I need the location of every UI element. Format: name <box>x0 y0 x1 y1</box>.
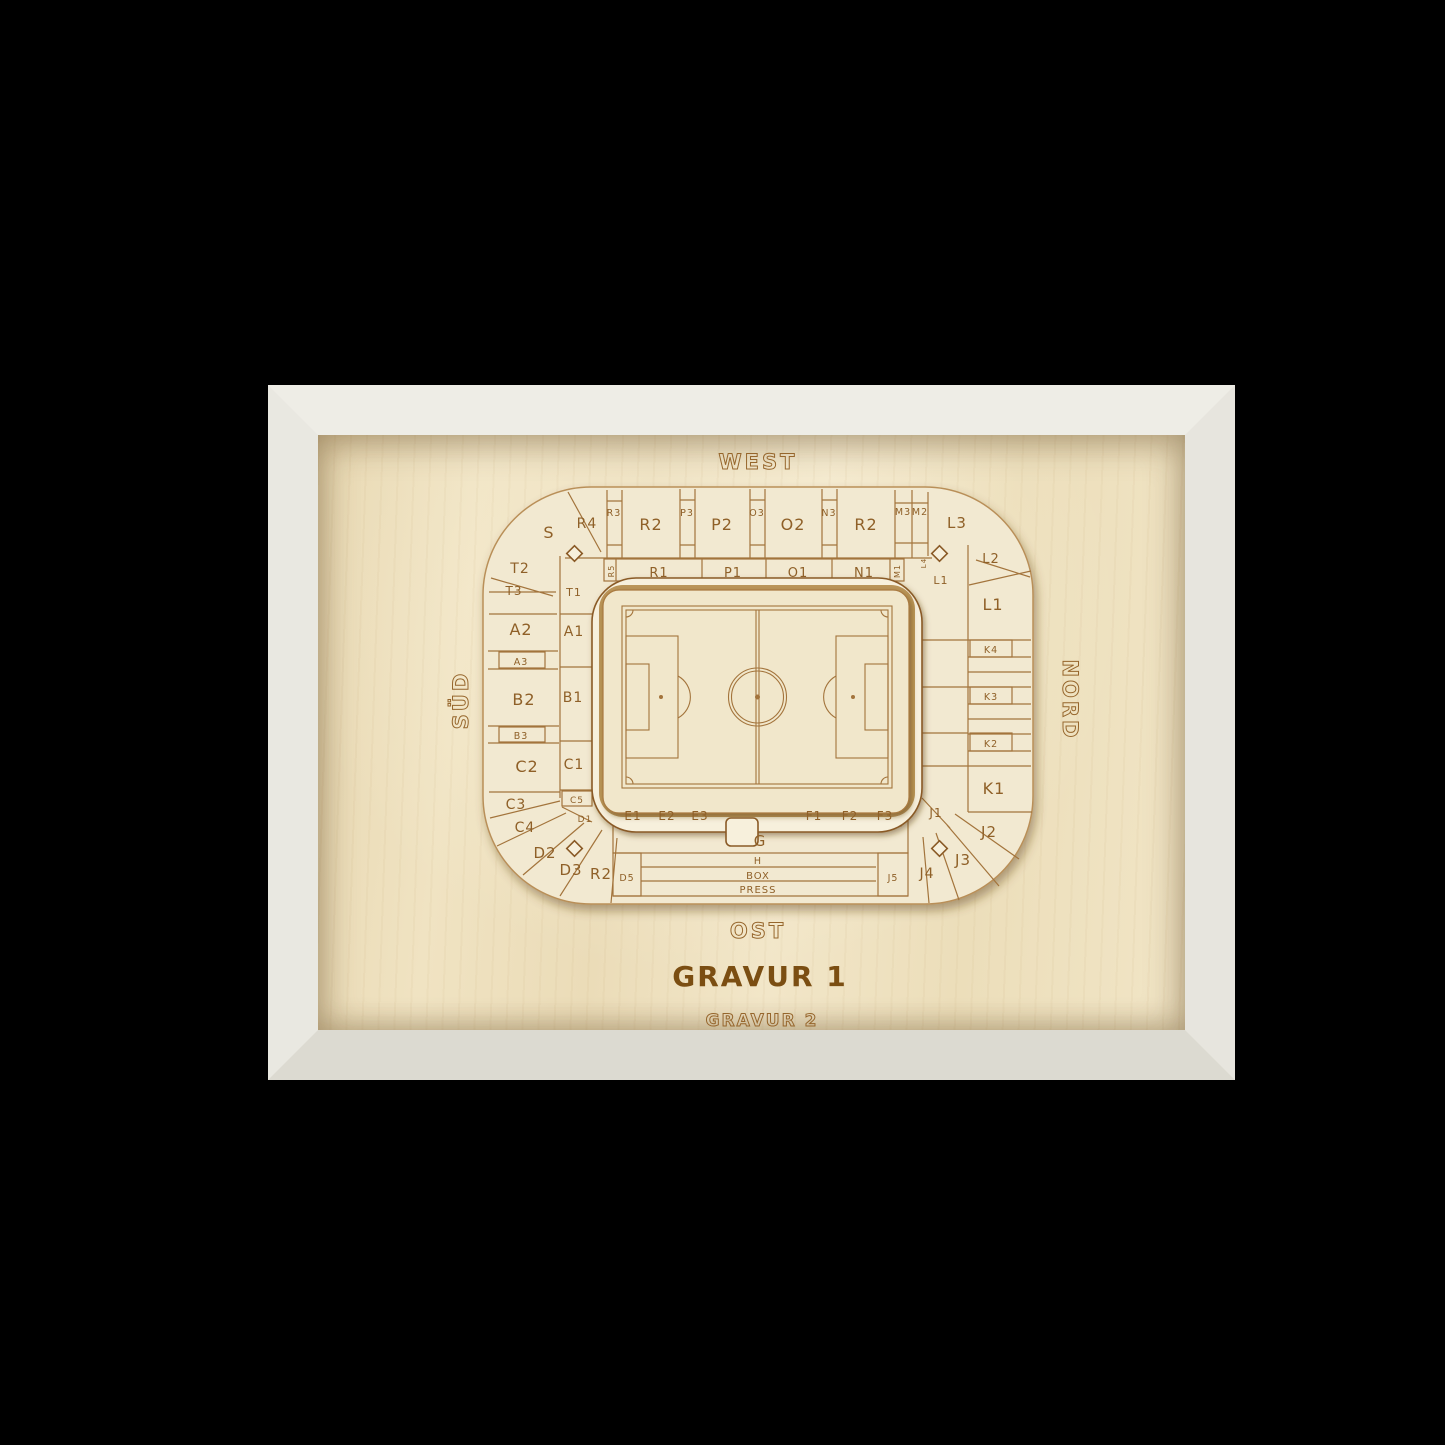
section-label-o3: O3 <box>749 508 765 519</box>
section-label-t3: T3 <box>505 584 523 598</box>
section-label-m3: M3 <box>895 507 911 518</box>
section-label-l1-inner: L1 <box>933 574 948 587</box>
section-label-m2: M2 <box>912 507 928 518</box>
section-label-f2: F2 <box>842 809 859 823</box>
section-label-g: G <box>754 832 767 850</box>
engraving-line-2: GRAVUR 2 <box>706 1011 819 1031</box>
section-label-a3: A3 <box>514 657 529 668</box>
section-label-r2b: R2 <box>854 515 877 534</box>
section-label-l4: L4 <box>920 558 928 568</box>
section-label-c1: C1 <box>564 757 585 773</box>
section-label-p3: P3 <box>680 508 694 519</box>
section-label-box: BOX <box>746 871 770 882</box>
section-label-r2c: R2 <box>590 865 612 883</box>
section-label-r4: R4 <box>577 516 598 532</box>
section-label-r5: R5 <box>607 565 616 578</box>
section-label-b2: B2 <box>512 690 535 709</box>
section-label-c2: C2 <box>515 757 538 776</box>
section-label-j5: J5 <box>887 873 899 884</box>
section-label-t1: T1 <box>565 586 582 599</box>
section-label-r2: R2 <box>639 515 662 534</box>
stand-label-ost: OST <box>730 919 786 943</box>
section-label-d3: D3 <box>559 861 582 879</box>
section-label-t2: T2 <box>509 561 529 577</box>
section-label-j1: J1 <box>928 806 942 820</box>
stand-label-nord: NORD <box>1058 659 1082 740</box>
section-label-n1: N1 <box>854 566 874 581</box>
section-label-d1: D1 <box>578 815 593 825</box>
section-label-f3: F3 <box>877 809 894 823</box>
section-label-c5: C5 <box>570 796 584 806</box>
engraving-line-1: GRAVUR 1 <box>672 960 848 993</box>
section-label-e2: E2 <box>658 809 675 823</box>
section-label-e1: E1 <box>624 809 641 823</box>
section-label-k4: K4 <box>984 645 998 656</box>
section-label-l1: L1 <box>982 595 1003 614</box>
section-label-j4: J4 <box>918 866 934 882</box>
section-label-k3: K3 <box>984 692 998 703</box>
section-label-c3: C3 <box>506 797 527 813</box>
section-label-d5: D5 <box>619 873 634 884</box>
section-label-a1: A1 <box>564 624 584 640</box>
section-label-j3: J3 <box>954 851 971 869</box>
section-label-h: H <box>754 856 762 867</box>
section-label-a2: A2 <box>509 620 532 639</box>
stand-label-sued: SÜD <box>448 671 473 730</box>
section-label-f1: F1 <box>806 809 823 823</box>
section-label-m1: M1 <box>893 564 902 578</box>
section-label-p2: P2 <box>711 515 733 534</box>
section-label-k1: K1 <box>983 779 1006 798</box>
section-label-l3: L3 <box>947 514 967 532</box>
section-label-k2: K2 <box>984 739 998 750</box>
stand-label-west: WEST <box>719 450 798 474</box>
section-label-b1: B1 <box>563 690 584 706</box>
section-label-press: PRESS <box>740 885 777 896</box>
section-label-o1: O1 <box>788 566 809 581</box>
section-label-j2: J2 <box>980 823 997 841</box>
section-label-c4: C4 <box>515 820 536 836</box>
section-label-s: S <box>543 523 554 542</box>
stadium-model: R4 R3 R2 P3 P2 O3 O2 N3 R2 M3 M2 L3 R5 R… <box>0 0 1445 1445</box>
section-label-d2: D2 <box>533 844 556 862</box>
section-label-l2: L2 <box>982 552 1000 567</box>
section-label-r3: R3 <box>607 508 622 519</box>
section-label-b3: B3 <box>514 731 529 742</box>
product-photo-wooden-stadium-plaque: { "colors": { "background": "#000000", "… <box>0 0 1445 1445</box>
section-label-r1: R1 <box>649 566 668 581</box>
section-label-o2: O2 <box>781 515 806 534</box>
section-label-p1: P1 <box>724 566 742 581</box>
section-label-e3: E3 <box>691 809 708 823</box>
section-label-n3: N3 <box>821 508 836 519</box>
